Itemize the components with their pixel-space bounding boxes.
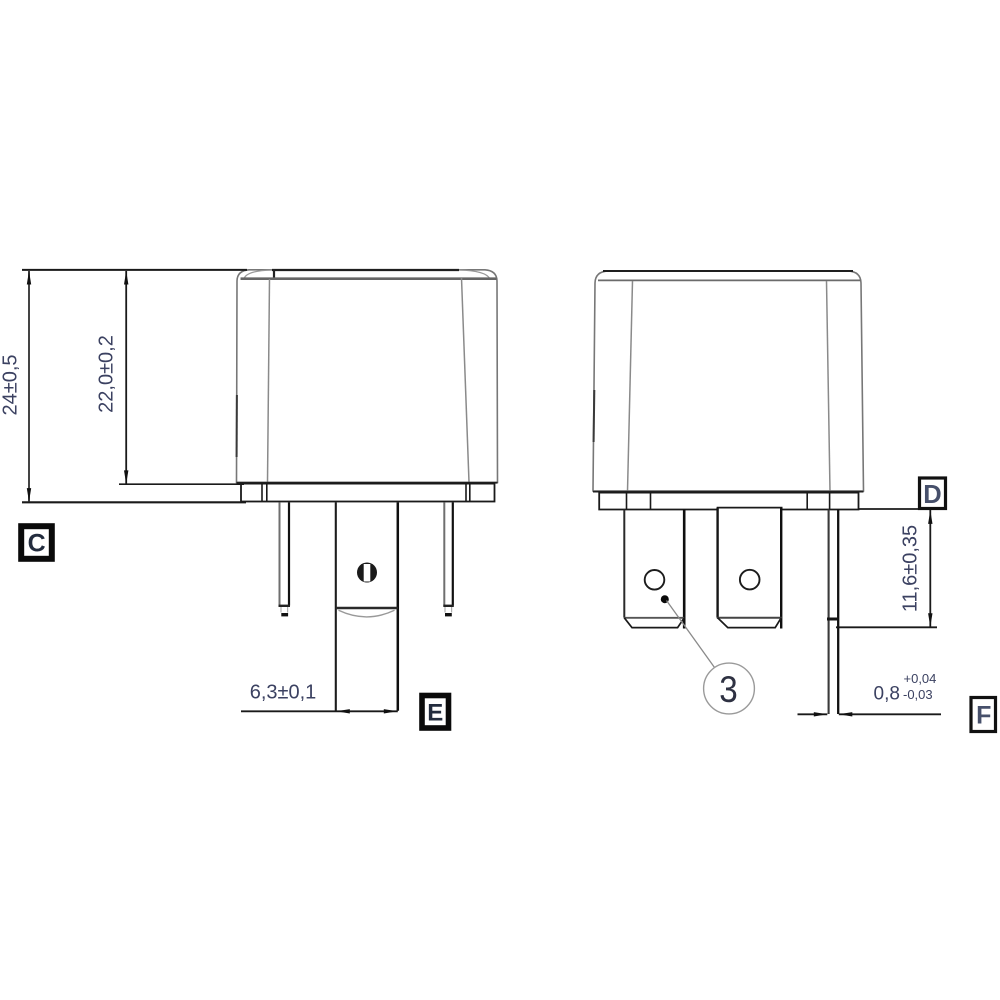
svg-text:11,6±0,35: 11,6±0,35 — [900, 525, 922, 612]
svg-text:E: E — [427, 700, 443, 727]
svg-text:24±0,5: 24±0,5 — [0, 354, 22, 415]
svg-text:-0,03: -0,03 — [903, 687, 933, 702]
svg-text:6,3±0,1: 6,3±0,1 — [250, 682, 317, 704]
svg-text:C: C — [28, 530, 46, 558]
svg-text:F: F — [976, 702, 991, 730]
svg-text:22,0±0,2: 22,0±0,2 — [96, 335, 118, 413]
svg-text:+0,04: +0,04 — [904, 671, 937, 686]
svg-text:3: 3 — [719, 669, 738, 710]
svg-text:0,8: 0,8 — [874, 684, 900, 705]
svg-text:D: D — [923, 481, 941, 509]
